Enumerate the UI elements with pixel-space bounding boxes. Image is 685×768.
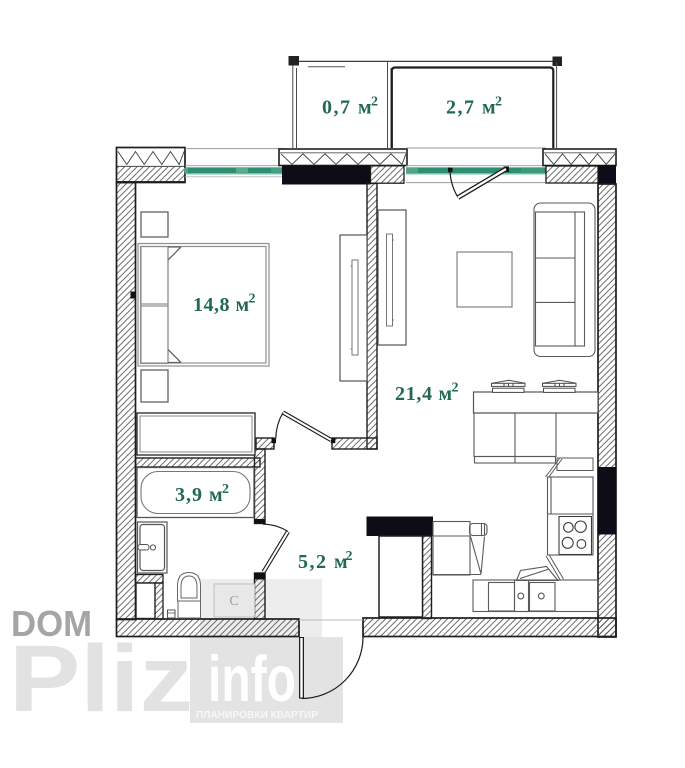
svg-text:2: 2 — [495, 95, 502, 110]
svg-text:2: 2 — [371, 95, 378, 110]
svg-text:3,9 м: 3,9 м — [175, 484, 224, 506]
svg-text:21,4 м: 21,4 м — [395, 383, 453, 405]
svg-text:2: 2 — [452, 381, 459, 396]
svg-text:2: 2 — [249, 292, 256, 307]
svg-text:Pliz: Pliz — [9, 626, 193, 732]
svg-text:2,7 м: 2,7 м — [446, 97, 497, 119]
svg-text:2: 2 — [346, 549, 353, 564]
svg-text:C: C — [230, 593, 239, 608]
svg-text:14,8 м: 14,8 м — [193, 294, 250, 316]
svg-text:5,2 м: 5,2 м — [298, 551, 349, 573]
svg-text:0,7 м: 0,7 м — [322, 97, 373, 119]
svg-text:info: info — [208, 642, 296, 715]
svg-text:ПЛАНИРОВКИ КВАРТИР: ПЛАНИРОВКИ КВАРТИР — [196, 710, 318, 721]
svg-text:2: 2 — [222, 482, 229, 497]
